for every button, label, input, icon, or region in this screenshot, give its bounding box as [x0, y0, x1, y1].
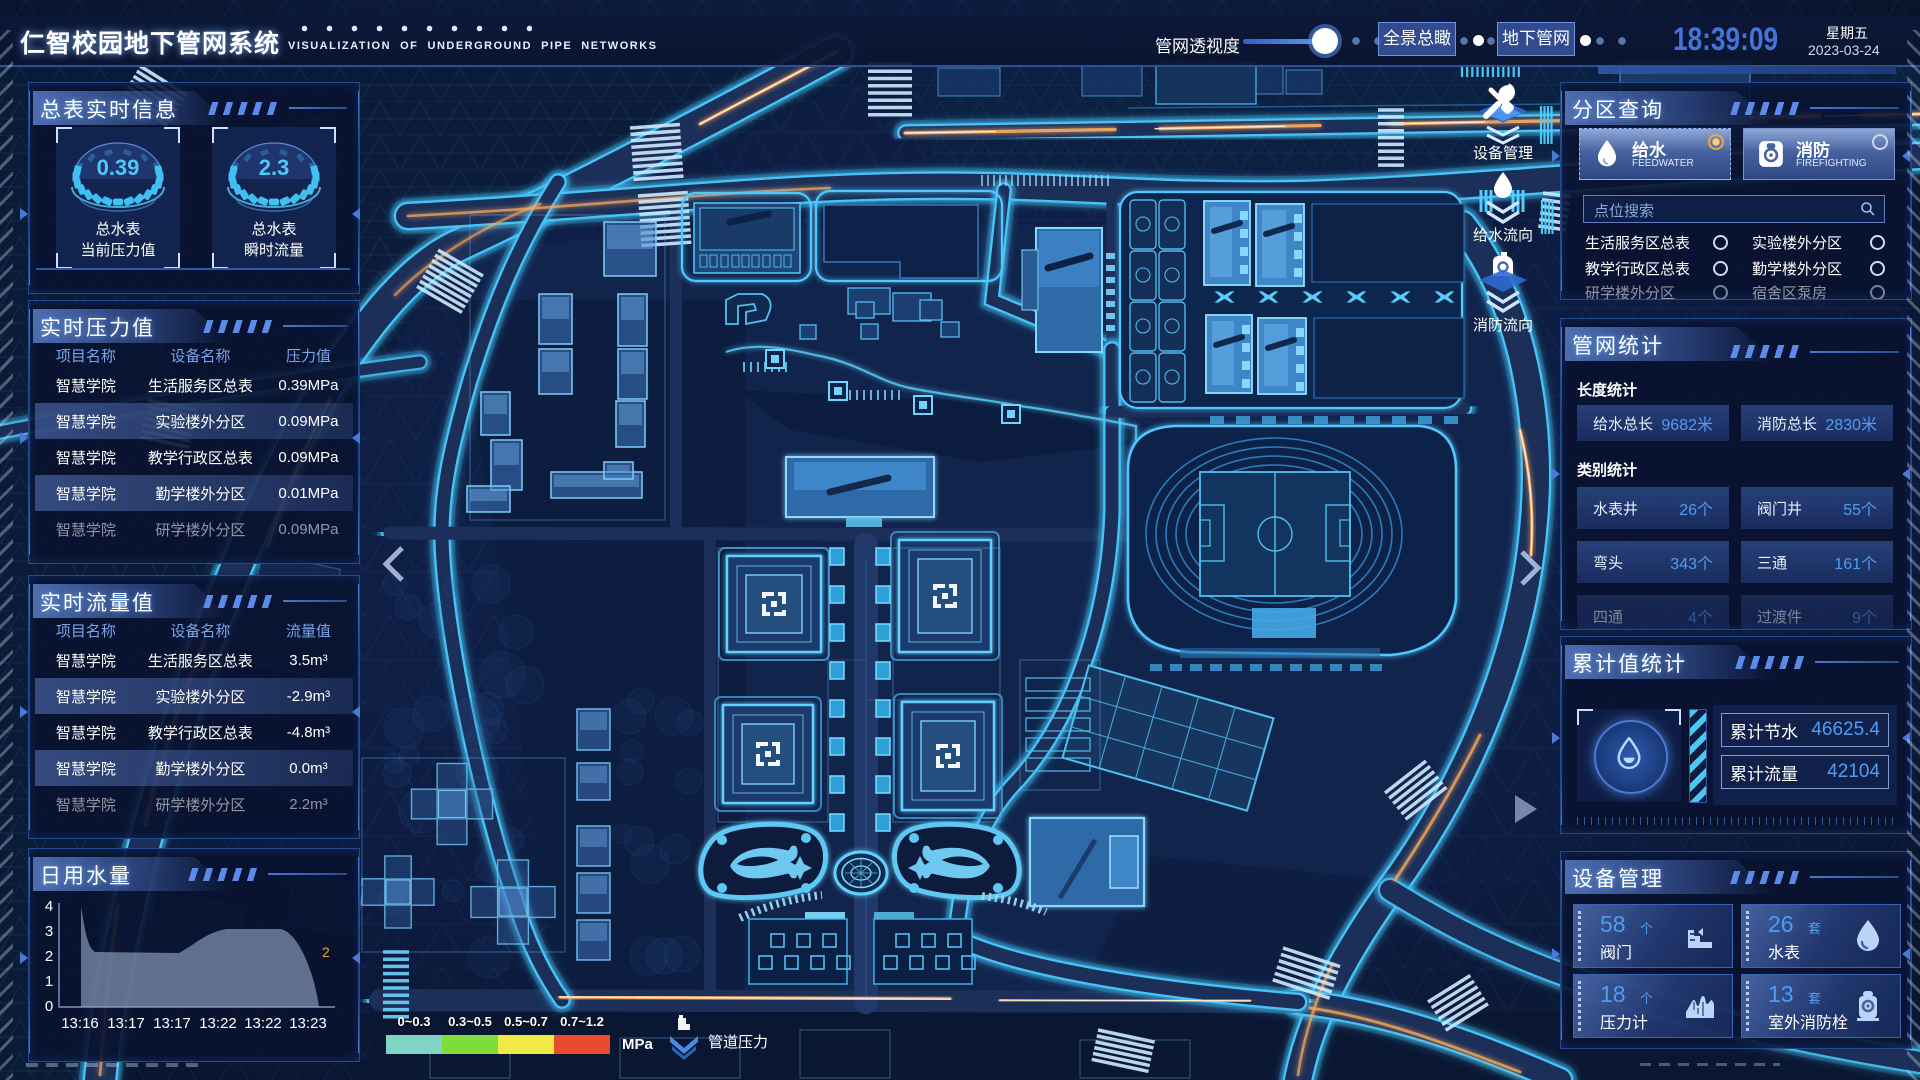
svg-text:3: 3 [45, 923, 53, 940]
svg-text:13:17: 13:17 [107, 1015, 145, 1032]
svg-text:4: 4 [45, 898, 53, 915]
svg-text:13:16: 13:16 [61, 1015, 99, 1032]
svg-text:13:23: 13:23 [289, 1015, 327, 1032]
svg-text:0.39: 0.39 [97, 155, 140, 180]
svg-text:13:22: 13:22 [199, 1015, 237, 1032]
svg-text:0: 0 [45, 998, 53, 1015]
svg-text:2.3: 2.3 [259, 155, 290, 180]
svg-text:消防流向: 消防流向 [1473, 317, 1533, 334]
svg-text:设备管理: 设备管理 [1473, 145, 1533, 162]
svg-text:2: 2 [45, 948, 53, 965]
svg-text:13:17: 13:17 [153, 1015, 191, 1032]
svg-text:13:22: 13:22 [244, 1015, 282, 1032]
svg-text:1: 1 [45, 973, 53, 990]
svg-text:2: 2 [322, 944, 330, 960]
svg-text:给水流向: 给水流向 [1473, 227, 1533, 244]
